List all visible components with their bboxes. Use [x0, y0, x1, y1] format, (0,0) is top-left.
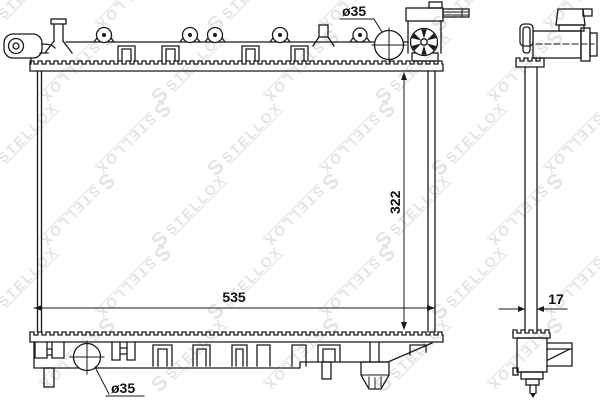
radiator-technical-drawing: ø35 — [0, 0, 600, 400]
tank-tab — [257, 345, 270, 366]
side-cap — [556, 9, 585, 25]
bracket-flange — [547, 343, 572, 366]
tank-tab — [318, 345, 340, 361]
inlet-pipe-opening — [372, 28, 406, 62]
top-seam-serration — [30, 61, 442, 64]
side-top-serration — [516, 58, 544, 61]
stub-collar — [51, 19, 66, 24]
side-bottom-serration — [513, 330, 549, 333]
tank-tab — [193, 345, 210, 366]
bottom-seam-serration — [30, 332, 442, 335]
outlet-pipe-opening — [70, 341, 104, 374]
mount-pin — [44, 368, 54, 387]
dim-bottom-pipe-label: ø35 — [111, 380, 135, 396]
inlet-stub — [40, 19, 72, 53]
clip-boss — [94, 28, 114, 43]
radiator-cap-icon — [411, 29, 438, 56]
dim-depth-label: 17 — [548, 291, 564, 307]
drain-plug — [361, 343, 389, 389]
drawing-canvas: SSTELLOXSSTELLOXSSTELLOXSSTELLOXSSTELLOX… — [0, 0, 600, 400]
clip-slot — [291, 46, 308, 61]
top-seam-band — [30, 64, 443, 71]
latch-post — [313, 25, 334, 46]
clip-boss — [270, 28, 290, 43]
side-bottom-bracket — [513, 330, 572, 398]
bracket-hole-outer — [9, 39, 24, 54]
clip-boss — [180, 28, 200, 43]
front-view: ø35 — [4, 2, 469, 396]
side-top-assembly — [516, 9, 597, 67]
tank-tab — [292, 345, 306, 366]
tank-tab — [232, 345, 247, 366]
dim-width-535: 535 — [34, 289, 435, 311]
dim-bottom-pipe: ø35 — [95, 367, 144, 396]
side-view: 17 — [499, 9, 597, 398]
bracket-body — [517, 338, 547, 372]
tank-tab — [153, 345, 172, 366]
dim-height-322: 322 — [387, 72, 407, 330]
drain-tip — [530, 385, 536, 393]
side-tube — [525, 67, 537, 330]
end-tab — [35, 342, 64, 358]
dim-height-label: 322 — [387, 190, 403, 214]
neck-cup — [406, 8, 443, 21]
dim-width-label: 535 — [222, 289, 246, 305]
clip-slot — [242, 46, 259, 61]
dim-depth-17: 17 — [499, 291, 567, 312]
mount-pin — [322, 362, 331, 379]
clip-boss — [205, 28, 225, 43]
stub-flare — [40, 41, 72, 53]
clip-boss — [350, 28, 370, 42]
overflow-tube — [443, 9, 469, 17]
clip-slot — [118, 46, 135, 61]
clip-slot — [162, 46, 179, 61]
h-tab — [112, 342, 135, 360]
dim-top-pipe-label: ø35 — [342, 3, 366, 19]
bottom-seam-band — [30, 335, 443, 342]
